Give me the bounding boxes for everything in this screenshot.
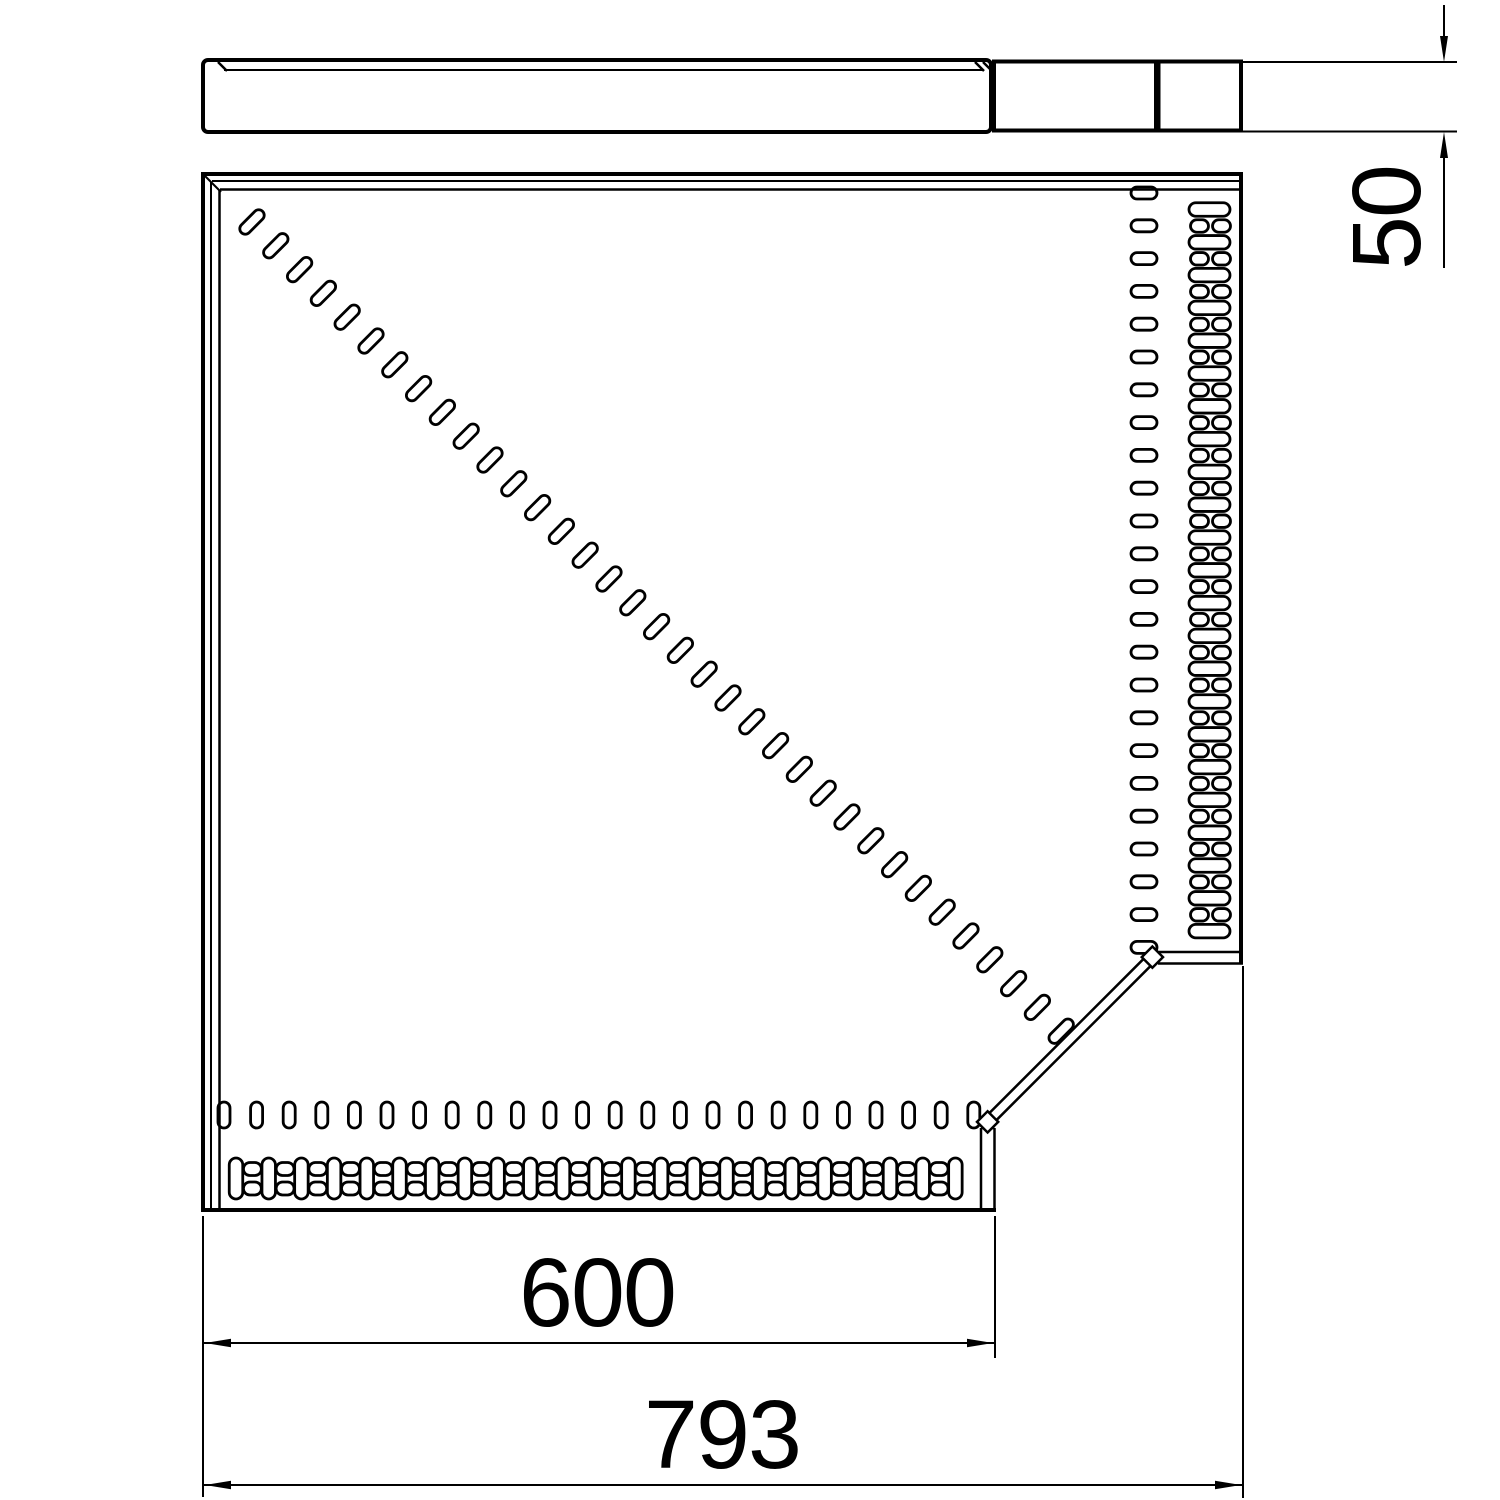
slot [1131, 515, 1157, 527]
dim793-arrow-right [1215, 1481, 1241, 1489]
slot [609, 1102, 621, 1128]
slot [1213, 318, 1231, 331]
cable-tray-flat-bend-drawing: 50 600 793 [0, 0, 1500, 1500]
slot [1189, 859, 1230, 873]
slot [472, 1182, 490, 1195]
slot [1213, 745, 1231, 758]
slot [276, 1163, 294, 1176]
slot [752, 1158, 766, 1199]
slot [577, 1102, 589, 1128]
slot [243, 1163, 261, 1176]
slot [1213, 220, 1231, 233]
slot [930, 1163, 948, 1176]
slot [636, 1163, 654, 1176]
slot [440, 1182, 458, 1195]
slot [342, 1182, 360, 1195]
slot [799, 1182, 817, 1195]
slot [1189, 367, 1230, 381]
slot [1191, 745, 1209, 758]
slot [1131, 909, 1157, 921]
slot [1131, 384, 1157, 396]
slot [1213, 909, 1231, 922]
slot [1131, 318, 1157, 330]
slot [1191, 909, 1209, 922]
slot [809, 779, 838, 808]
slot [476, 446, 505, 475]
slot [1189, 662, 1230, 676]
slot [571, 541, 600, 570]
side-view [203, 60, 1241, 132]
slot [1189, 432, 1230, 446]
slot [357, 327, 386, 356]
slot [1131, 417, 1157, 429]
slot [832, 1182, 850, 1195]
slot [1191, 777, 1209, 790]
slot [407, 1163, 425, 1176]
slot [243, 1182, 261, 1195]
dim793-arrow-left [205, 1481, 231, 1489]
slot [1191, 646, 1209, 659]
slot [570, 1163, 588, 1176]
slot [1213, 351, 1231, 364]
slot [595, 565, 624, 594]
slot [935, 1102, 947, 1128]
slot [1131, 646, 1157, 658]
slot [618, 588, 647, 617]
slot [472, 1163, 490, 1176]
slot [262, 1158, 276, 1199]
slot [930, 1182, 948, 1195]
slot [767, 1163, 785, 1176]
slot [1213, 449, 1231, 462]
slot [1191, 482, 1209, 495]
slot [1131, 810, 1157, 822]
slot [1191, 548, 1209, 561]
bottom-sparse-slot-row [218, 1102, 980, 1128]
slot [654, 1158, 668, 1199]
slot [734, 1163, 752, 1176]
slot [832, 1163, 850, 1176]
dimension-600: 600 [203, 1216, 995, 1497]
slot [701, 1163, 719, 1176]
slot [928, 898, 957, 927]
slot [1213, 777, 1231, 790]
slot [636, 1182, 654, 1195]
slot [1189, 301, 1230, 315]
slot [772, 1102, 784, 1128]
slot [505, 1163, 523, 1176]
slot [1131, 449, 1157, 461]
plan-outer-edge [203, 174, 1241, 1210]
slot [799, 1163, 817, 1176]
slot [1189, 236, 1230, 250]
slot [720, 1158, 734, 1199]
slot [544, 1102, 556, 1128]
slot [229, 1158, 243, 1199]
slot [833, 803, 862, 832]
slot [870, 1102, 882, 1128]
slot [865, 1163, 883, 1176]
slot [458, 1158, 472, 1199]
slot [1131, 777, 1157, 789]
connector-block-2 [1159, 62, 1242, 131]
slot [1191, 679, 1209, 692]
slot [1131, 745, 1157, 757]
dim600-arrow-left [205, 1339, 231, 1347]
slot [883, 1158, 897, 1199]
slot [642, 1102, 654, 1128]
dim50-arrow-bottom [1440, 132, 1448, 158]
connector-block-1 [994, 62, 1156, 131]
slot [261, 231, 290, 260]
slot [1189, 760, 1230, 774]
slot [674, 1102, 686, 1128]
slot [1191, 318, 1209, 331]
slot [851, 1158, 865, 1199]
slot [1191, 417, 1209, 430]
slot [547, 517, 576, 546]
slot [1131, 253, 1157, 265]
slot [1213, 285, 1231, 298]
slot [316, 1102, 328, 1128]
slot [1131, 285, 1157, 297]
slot [622, 1158, 636, 1199]
slot [1213, 515, 1231, 528]
slot [538, 1182, 556, 1195]
dimension-label-600: 600 [519, 1238, 675, 1347]
slot [785, 1158, 799, 1199]
slot [1213, 876, 1231, 889]
slot [1189, 793, 1230, 807]
slot [523, 493, 552, 522]
slot [740, 1102, 752, 1128]
slot [1213, 384, 1231, 397]
slot [603, 1163, 621, 1176]
slot [737, 707, 766, 736]
slot [1189, 268, 1230, 282]
slot [865, 1182, 883, 1195]
slot [479, 1102, 491, 1128]
slot [1131, 351, 1157, 363]
slot [374, 1163, 392, 1176]
slot [1189, 531, 1230, 545]
slot [904, 874, 933, 903]
slot [1213, 482, 1231, 495]
slot [1131, 482, 1157, 494]
slot [1213, 843, 1231, 856]
slot [251, 1102, 263, 1128]
slot [360, 1158, 374, 1199]
slot [1189, 695, 1230, 709]
slot [642, 612, 671, 641]
slot [348, 1102, 360, 1128]
slot [999, 969, 1028, 998]
slot [524, 1158, 538, 1199]
dimension-793: 793 [203, 966, 1243, 1498]
right-sparse-slot-column [1131, 187, 1157, 953]
slot [327, 1158, 341, 1199]
slot [309, 1163, 327, 1176]
slot [407, 1182, 425, 1195]
slot [556, 1158, 570, 1199]
slot [903, 1102, 915, 1128]
slot [734, 1182, 752, 1195]
slot [767, 1182, 785, 1195]
right-dense-slot-column [1189, 203, 1231, 938]
plan-view [203, 174, 1243, 1212]
slot [1191, 613, 1209, 626]
slot [404, 374, 433, 403]
slot [1213, 581, 1231, 594]
slot [446, 1102, 458, 1128]
slot [1131, 843, 1157, 855]
slot [374, 1182, 392, 1195]
slot [1213, 417, 1231, 430]
slot [295, 1158, 309, 1199]
slot [283, 1102, 295, 1128]
slot [285, 255, 314, 284]
slot [761, 731, 790, 760]
slot [1191, 253, 1209, 265]
slot [949, 1158, 963, 1199]
slot [491, 1158, 505, 1199]
slot [669, 1163, 687, 1176]
slot [603, 1182, 621, 1195]
slot [538, 1163, 556, 1176]
slot [414, 1102, 426, 1128]
slot [1191, 384, 1209, 397]
slot [333, 303, 362, 332]
slot [916, 1158, 930, 1199]
slot [440, 1163, 458, 1176]
slot [425, 1158, 439, 1199]
slot [690, 660, 719, 689]
dim50-extension-lines [1243, 62, 1457, 132]
slot [818, 1158, 832, 1199]
slot [1191, 449, 1209, 462]
dimension-label-50: 50 [1332, 166, 1441, 270]
slot [1189, 203, 1230, 217]
corner-miter-line [204, 175, 221, 192]
slot [1131, 220, 1157, 232]
dimension-50: 50 [1243, 5, 1457, 270]
slot [1023, 993, 1052, 1022]
slot [309, 1182, 327, 1195]
slot [687, 1158, 701, 1199]
slot [1189, 465, 1230, 479]
slot [1189, 334, 1230, 348]
slot [1131, 581, 1157, 593]
slot [1189, 924, 1230, 938]
slot [570, 1182, 588, 1195]
slot [276, 1182, 294, 1195]
slot [1191, 843, 1209, 856]
slot [1189, 400, 1230, 414]
slot [805, 1102, 817, 1128]
slot [1191, 810, 1209, 823]
slot [589, 1158, 603, 1199]
technical-drawing-page: 50 600 793 [0, 0, 1500, 1500]
slot [1191, 220, 1209, 233]
dim600-arrow-right [967, 1339, 993, 1347]
slot [1191, 712, 1209, 725]
slot [1213, 712, 1231, 725]
slot [975, 945, 1004, 974]
slot [897, 1163, 915, 1176]
slot [505, 1182, 523, 1195]
slot [380, 350, 409, 379]
bottom-connector-end-cap [981, 1128, 995, 1212]
slot [1189, 892, 1230, 906]
slot [837, 1102, 849, 1128]
slot [707, 1102, 719, 1128]
slot [381, 1102, 393, 1128]
slot [1191, 876, 1209, 889]
slot [1131, 876, 1157, 888]
slot [1189, 498, 1230, 512]
bottom-dense-slot-row [229, 1158, 962, 1199]
slot [1213, 613, 1231, 626]
slot [238, 208, 267, 237]
slot [1189, 826, 1230, 840]
slot [1189, 629, 1230, 643]
slot [1131, 679, 1157, 691]
slot [1189, 564, 1230, 578]
slot [1131, 548, 1157, 560]
slot [1189, 728, 1230, 742]
slot [952, 922, 981, 951]
slot [1191, 351, 1209, 364]
diagonal-slot-row [238, 208, 1076, 1046]
slot [714, 684, 743, 713]
slot [1191, 285, 1209, 298]
slot [1131, 613, 1157, 625]
slot [701, 1182, 719, 1195]
slot [342, 1163, 360, 1176]
slot [880, 850, 909, 879]
slot [393, 1158, 407, 1199]
slot [511, 1102, 523, 1128]
right-connector-end-cap [1158, 952, 1243, 964]
slot [1191, 515, 1209, 528]
slot [1191, 581, 1209, 594]
slot [1189, 596, 1230, 610]
dim50-arrow-top [1440, 36, 1448, 62]
slot [666, 636, 695, 665]
slot [499, 469, 528, 498]
slot [785, 755, 814, 784]
slot [1213, 253, 1231, 265]
slot [428, 398, 457, 427]
slot [1213, 810, 1231, 823]
slot [452, 422, 481, 451]
slot [1213, 646, 1231, 659]
slot [309, 279, 338, 308]
chamfer-rail [977, 947, 1163, 1133]
slot [669, 1182, 687, 1195]
slot [856, 826, 885, 855]
dimension-label-793: 793 [644, 1380, 800, 1489]
slot [1213, 548, 1231, 561]
slot [1131, 712, 1157, 724]
slot [1213, 679, 1231, 692]
slot [897, 1182, 915, 1195]
